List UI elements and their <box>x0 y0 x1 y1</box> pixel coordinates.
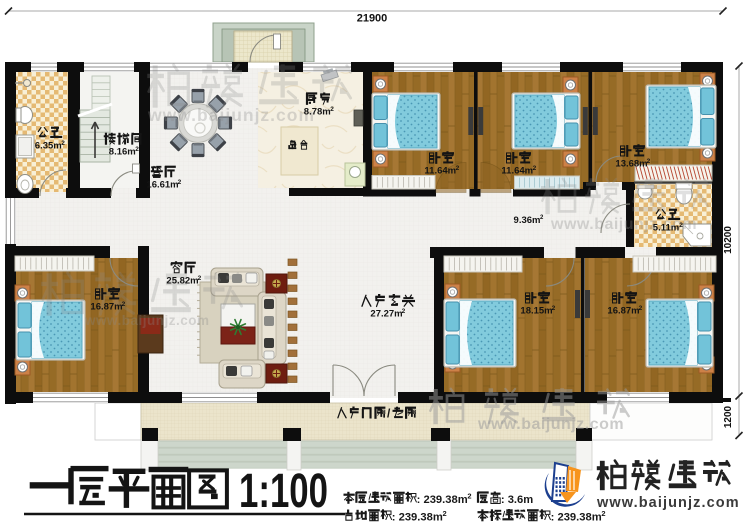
svg-text:11.64m: 11.64m <box>424 165 456 176</box>
svg-text:16.87m: 16.87m <box>607 305 639 316</box>
svg-text:www.baijunjz.com: www.baijunjz.com <box>596 495 740 511</box>
svg-text:21900: 21900 <box>357 13 388 25</box>
svg-text:10200: 10200 <box>723 226 734 254</box>
svg-text:2: 2 <box>178 179 182 186</box>
svg-text:2: 2 <box>443 509 447 518</box>
svg-text:2: 2 <box>679 222 683 229</box>
svg-text:16.87m: 16.87m <box>90 301 122 312</box>
svg-text:2: 2 <box>639 305 643 312</box>
svg-text:11.64m: 11.64m <box>501 165 533 176</box>
svg-text:2: 2 <box>135 146 139 153</box>
svg-text:2: 2 <box>552 305 556 312</box>
svg-text:25.82m: 25.82m <box>166 275 198 286</box>
svg-text:www.baijunjz.com: www.baijunjz.com <box>477 416 624 433</box>
svg-text:: 239.38m: : 239.38m <box>551 512 602 524</box>
svg-text:8.16m: 8.16m <box>109 146 136 157</box>
svg-text:: 239.38m: : 239.38m <box>417 494 468 506</box>
svg-text:18.15m: 18.15m <box>520 305 552 316</box>
svg-text:2: 2 <box>467 492 471 501</box>
svg-text:2: 2 <box>533 165 537 172</box>
svg-text:2: 2 <box>647 158 651 165</box>
svg-text:2: 2 <box>330 106 334 113</box>
svg-text:8.78m: 8.78m <box>304 106 331 117</box>
svg-text:6.35m: 6.35m <box>35 140 62 151</box>
svg-text:27.27m: 27.27m <box>370 309 402 320</box>
svg-text:13.68m: 13.68m <box>615 158 647 169</box>
svg-text:2: 2 <box>456 165 460 172</box>
svg-text:2: 2 <box>122 301 126 308</box>
svg-text:1:100: 1:100 <box>239 465 328 518</box>
svg-text:2: 2 <box>402 308 406 315</box>
svg-text:www.baijunjz.com: www.baijunjz.com <box>147 105 315 125</box>
svg-text:2: 2 <box>61 140 65 147</box>
svg-text:16.61m: 16.61m <box>146 179 178 190</box>
svg-text:: 3.6m: : 3.6m <box>501 494 533 506</box>
svg-text:www.baijunjz.com: www.baijunjz.com <box>84 313 210 328</box>
svg-text:5.11m: 5.11m <box>653 222 679 233</box>
svg-text:9.36m: 9.36m <box>514 215 541 226</box>
svg-text:2: 2 <box>198 275 202 282</box>
svg-text:: 239.38m: : 239.38m <box>392 512 443 524</box>
svg-text:1200: 1200 <box>723 405 734 428</box>
